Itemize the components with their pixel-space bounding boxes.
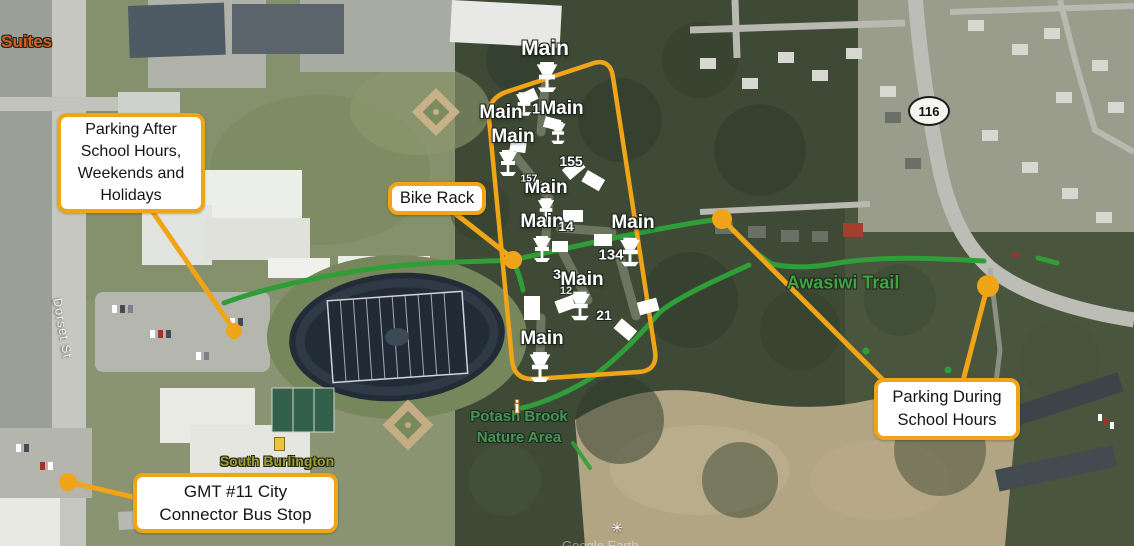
disc-golf-basket-icon: [550, 122, 565, 144]
hole-number: 3: [553, 266, 561, 282]
hole-label: Main: [540, 98, 583, 120]
hole-label: Main: [520, 328, 563, 350]
callout-gmt-bus-stop: GMT #11 City Connector Bus Stop: [133, 473, 338, 533]
callout-parking-after: Parking After School Hours, Weekends and…: [57, 113, 205, 213]
callout-parking-after-text: Parking After School Hours, Weekends and…: [69, 119, 193, 207]
info-icon: i: [514, 397, 519, 418]
hole-label: Main: [491, 126, 534, 148]
hole-label: Main: [479, 102, 522, 124]
callout-bike-rack-text: Bike Rack: [400, 187, 474, 210]
callout-bike-rack: Bike Rack: [388, 182, 486, 215]
hole-label: Main: [611, 212, 654, 234]
callout-gmt-bus-stop-text: GMT #11 City Connector Bus Stop: [147, 480, 324, 527]
hole-number: 14: [558, 218, 574, 234]
south-burlington-label: South Burlington: [220, 453, 334, 469]
callout-parking-during-text: Parking During School Hours: [886, 386, 1008, 432]
disc-golf-basket-icon: [530, 352, 551, 382]
hole-label: Main: [520, 211, 563, 233]
hole-number: 155: [559, 153, 582, 169]
tennis-courts: [272, 388, 334, 432]
disc-golf-basket-icon: [570, 292, 590, 321]
callout-parking-during: Parking During School Hours: [874, 378, 1020, 440]
disc-golf-basket-icon: [499, 150, 517, 176]
route-116-shield: 116: [908, 96, 950, 126]
spring-icon: ✳: [611, 520, 623, 537]
hole-number: 1: [532, 101, 540, 118]
hole-number: 134: [598, 247, 623, 264]
awasiwi-trail-label: Awasiwi Trail: [787, 273, 900, 294]
red-roof-house: [843, 223, 863, 237]
hole-number: 12: [560, 285, 572, 297]
hole-label: Main: [521, 37, 569, 61]
watermark: Google Earth: [562, 538, 639, 546]
suites-place-label: n Suites: [0, 32, 52, 52]
route-116-number: 116: [919, 104, 940, 119]
hole-number: 157: [521, 174, 538, 185]
potash-brook-line2: Nature Area: [470, 427, 568, 448]
disc-golf-basket-icon: [533, 236, 551, 262]
disc-golf-basket-icon: [537, 62, 558, 92]
map-canvas: n Suites Dorset St South Burlington Awas…: [0, 0, 1134, 546]
hole-number: 21: [596, 307, 612, 323]
school-poi-icon: [274, 437, 285, 451]
